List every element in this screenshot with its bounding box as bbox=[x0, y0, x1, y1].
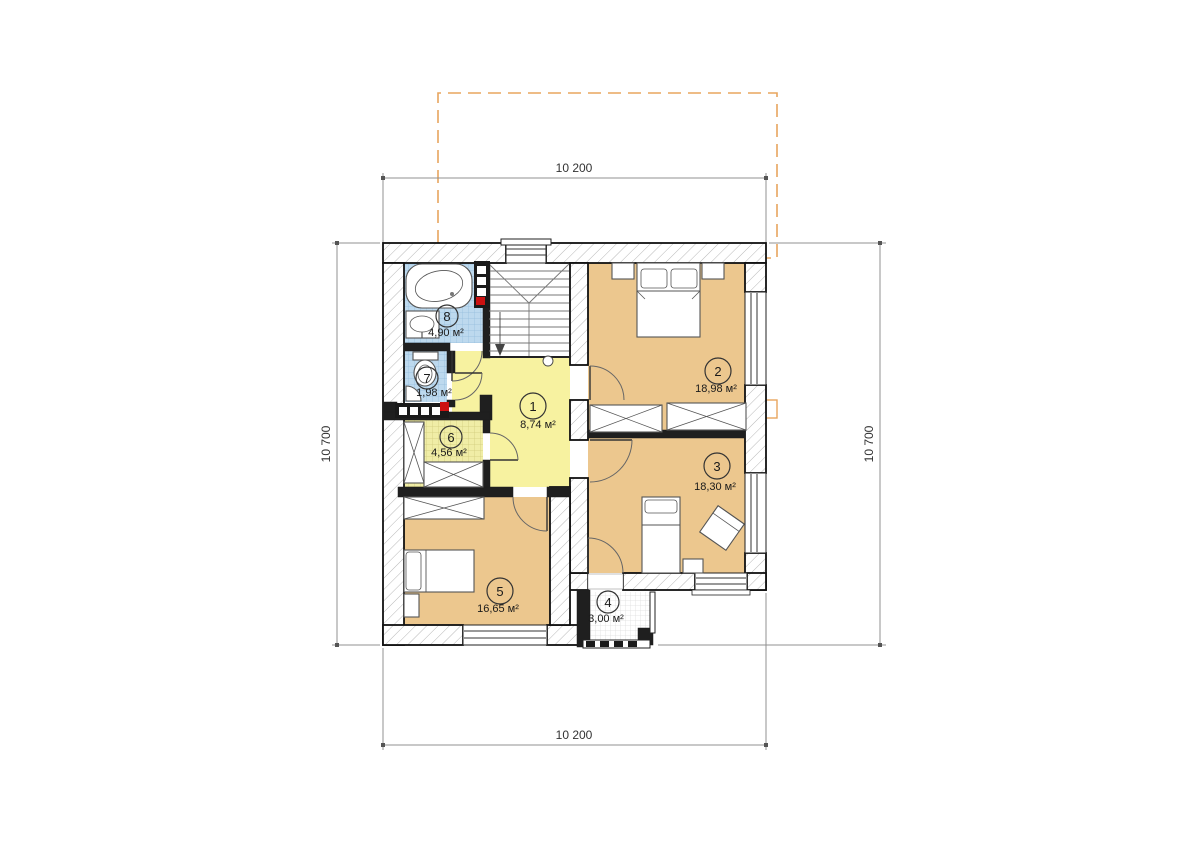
balcony-railing bbox=[583, 640, 650, 648]
dim-bottom-value: 10 200 bbox=[556, 728, 593, 742]
room-6-number: 6 bbox=[447, 430, 454, 445]
wardrobe bbox=[590, 405, 662, 432]
nightstand bbox=[612, 263, 634, 279]
wardrobe bbox=[404, 422, 424, 483]
room-3-number: 3 bbox=[713, 459, 720, 474]
bedside-table bbox=[404, 594, 419, 617]
window-stairs-top bbox=[501, 239, 551, 263]
window-room-2 bbox=[745, 292, 766, 385]
vent-shaft-vertical bbox=[474, 261, 490, 308]
floor-plan-page: 10 200 10 200 10 700 10 700 bbox=[0, 0, 1200, 849]
window-room-5 bbox=[463, 625, 547, 645]
room-4-number: 4 bbox=[604, 595, 611, 610]
room-1-area: 8,74 м² bbox=[520, 419, 556, 431]
window-room-3 bbox=[745, 473, 766, 553]
vent-shaft-horizontal bbox=[395, 402, 449, 418]
dim-top-value: 10 200 bbox=[556, 161, 593, 175]
toilet-tank bbox=[413, 352, 438, 360]
dimension-left: 10 700 bbox=[319, 241, 380, 647]
dimension-top: 10 200 bbox=[381, 161, 768, 243]
room-5-area: 16,65 м² bbox=[477, 603, 519, 615]
room-1-number: 1 bbox=[529, 399, 536, 414]
window-room-3-south bbox=[692, 573, 750, 595]
room-2-number: 2 bbox=[714, 364, 721, 379]
single-bed bbox=[404, 550, 474, 592]
single-bed bbox=[642, 497, 680, 573]
floor-plan-drawing: 10 200 10 200 10 700 10 700 bbox=[0, 0, 1200, 849]
wardrobe bbox=[404, 497, 484, 519]
nightstand bbox=[702, 263, 724, 279]
room-2-area: 18,98 м² bbox=[695, 383, 737, 395]
wardrobe bbox=[667, 403, 746, 430]
room-5-number: 5 bbox=[496, 584, 503, 599]
room-7-area: 1,98 м² bbox=[416, 387, 452, 399]
room-4-area: 3,00 м² bbox=[588, 613, 624, 625]
column bbox=[543, 356, 553, 366]
room-3-area: 18,30 м² bbox=[694, 481, 736, 493]
room-8-number: 8 bbox=[443, 309, 450, 324]
dim-right-value: 10 700 bbox=[862, 425, 876, 462]
room-8-area: 4,90 м² bbox=[428, 327, 464, 339]
dim-left-value: 10 700 bbox=[319, 425, 333, 462]
bedside-table bbox=[683, 559, 703, 573]
room-6-area: 4,56 м² bbox=[431, 447, 467, 459]
room-7-number: 7 bbox=[423, 371, 430, 386]
wardrobe bbox=[424, 462, 483, 487]
double-bed bbox=[637, 263, 700, 337]
